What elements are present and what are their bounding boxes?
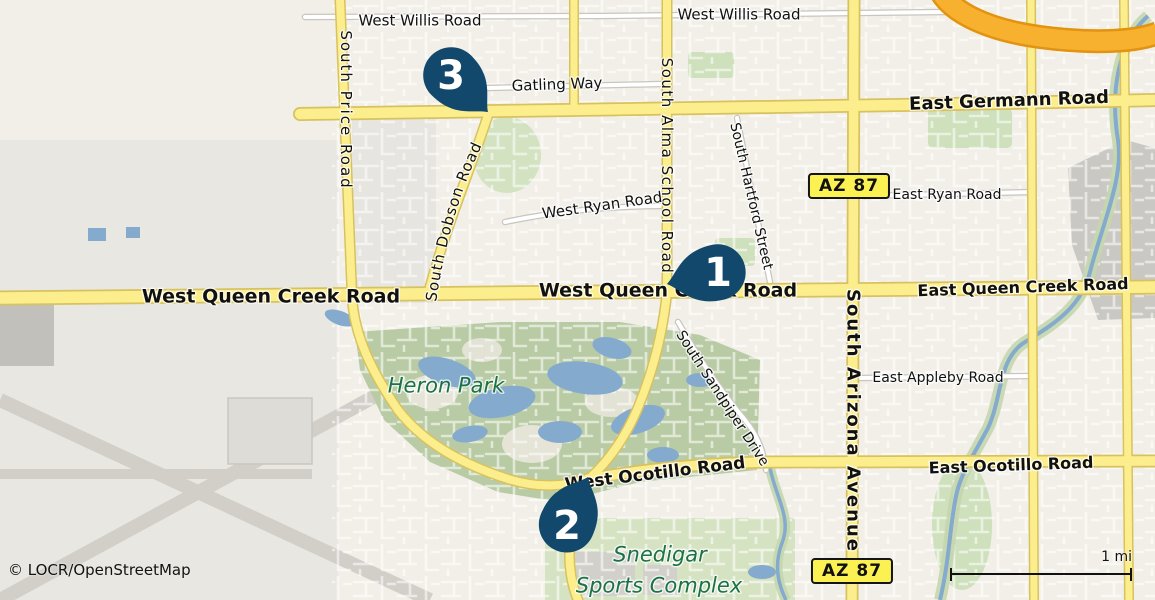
label-snedigar-line1: Snedigar (613, 542, 708, 566)
scale-bar: 1 mi (950, 549, 1132, 581)
label-south-alma-school-road: South Alma School Road (658, 58, 676, 275)
scale-label: 1 mi (950, 549, 1132, 565)
pond (538, 421, 582, 443)
scale-line (950, 568, 1132, 581)
map-canvas[interactable]: West Willis RoadWest Willis RoadGatling … (0, 0, 1155, 600)
label-south-price-road: South Price Road (337, 30, 355, 189)
label-gatling-way: Gatling Way (511, 74, 602, 95)
marker-number: 2 (553, 503, 581, 549)
label-east-ryan-road: East Ryan Road (893, 187, 1002, 203)
label-south-arizona-avenue: South Arizona Avenue (843, 289, 864, 553)
marker-number: 3 (437, 53, 465, 99)
airport-building (0, 300, 54, 366)
airport-apron (228, 398, 312, 464)
marker-number: 1 (704, 250, 732, 296)
route-shield-az87-south: AZ 87 (811, 558, 893, 584)
label-west-willis-road-right: West Willis Road (677, 5, 800, 23)
route-shield-az87-north: AZ 87 (808, 173, 890, 199)
pond (88, 228, 106, 241)
label-snedigar-line2: Sports Complex (576, 573, 743, 597)
label-west-willis-road-left: West Willis Road (358, 11, 481, 29)
pond (748, 565, 776, 579)
label-west-queen-creek-road-left: West Queen Creek Road (142, 286, 400, 308)
pond (126, 227, 140, 238)
map-attribution: © LOCR/OpenStreetMap (8, 561, 191, 579)
map-tiles: West Willis RoadWest Willis RoadGatling … (0, 0, 1155, 600)
label-heron-park: Heron Park (388, 373, 505, 397)
label-east-appleby-road: East Appleby Road (872, 370, 1003, 386)
